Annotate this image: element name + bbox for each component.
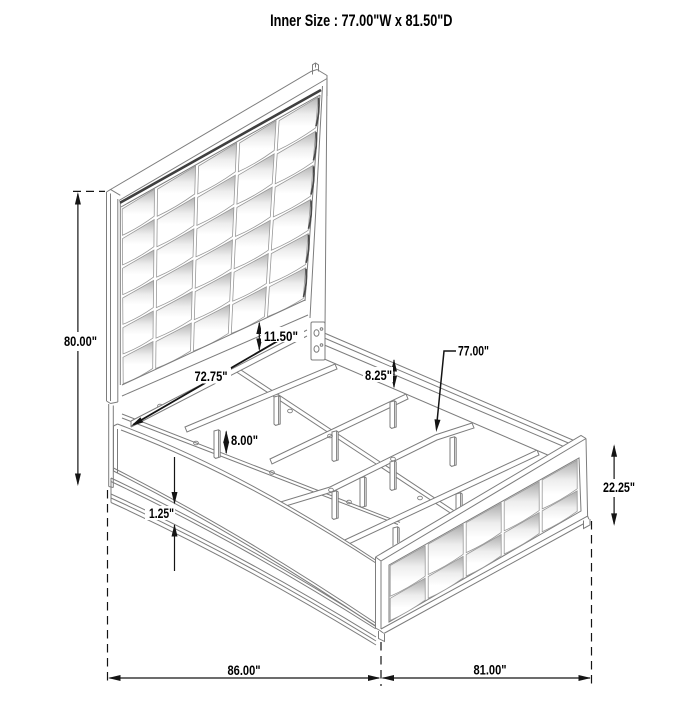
svg-text:80.00": 80.00" [64, 334, 97, 349]
svg-text:11.50": 11.50" [264, 329, 298, 344]
svg-text:Inner Size : 77.00"W x 81.50"D: Inner Size : 77.00"W x 81.50"D [270, 12, 452, 30]
svg-text:77.00": 77.00" [458, 344, 489, 359]
svg-text:22.25": 22.25" [603, 480, 635, 495]
svg-text:81.00": 81.00" [474, 663, 507, 678]
svg-text:86.00": 86.00" [228, 663, 261, 678]
svg-text:1.25": 1.25" [149, 506, 174, 521]
svg-text:8.00": 8.00" [231, 433, 258, 448]
svg-text:8.25": 8.25" [365, 368, 392, 383]
svg-text:72.75": 72.75" [195, 369, 228, 384]
